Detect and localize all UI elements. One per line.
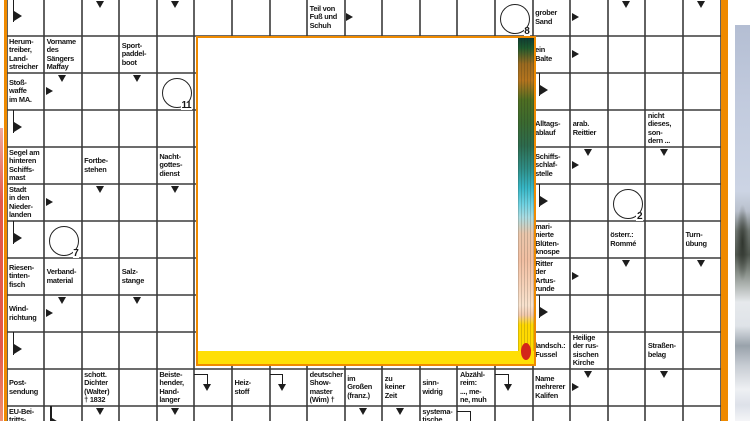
answer-cell[interactable]	[382, 0, 420, 36]
answer-cell[interactable]	[82, 332, 120, 369]
elbow-down-arrow-icon	[495, 374, 517, 396]
answer-cell[interactable]	[533, 295, 571, 332]
answer-cell[interactable]	[119, 110, 157, 147]
answer-cell[interactable]	[157, 0, 195, 36]
answer-cell[interactable]	[44, 184, 82, 221]
answer-cell[interactable]	[683, 0, 721, 36]
arrow-down-icon	[96, 408, 104, 415]
clue-text: EU-Bei- tritts-	[7, 406, 45, 421]
arrow-down-icon	[359, 408, 367, 415]
answer-cell[interactable]	[232, 406, 270, 421]
solution-circle-number: 2	[636, 212, 642, 222]
flag-arrow-icon	[539, 184, 551, 208]
arrow-down-icon	[96, 186, 104, 193]
answer-cell[interactable]	[7, 0, 45, 36]
answer-cell[interactable]	[157, 184, 195, 221]
clue-text: Fortbe- stehen	[82, 157, 120, 173]
photo-red-detail	[521, 343, 531, 360]
clue-cell: Nacht- gottes- dienst	[157, 147, 195, 184]
clue-text: ein Balte	[533, 46, 571, 62]
clue-text: arab. Reittier	[570, 120, 608, 136]
clue-text: nicht dieses, son- dern ...	[645, 112, 683, 145]
clue-text: Heilige der rus- sischen Kirche	[570, 334, 608, 367]
solution-circle: 8	[500, 4, 530, 34]
answer-cell[interactable]	[119, 147, 157, 184]
clue-cell: Straßen- belag	[645, 332, 683, 369]
answer-cell[interactable]: 11	[157, 73, 195, 110]
solution-circle-number: 7	[73, 249, 79, 259]
clue-cell: Wind- richtung	[7, 295, 45, 332]
answer-cell[interactable]	[44, 406, 82, 421]
arrow-down-icon	[171, 186, 179, 193]
clue-cell: österr.: Rommé	[608, 221, 646, 258]
answer-cell[interactable]	[157, 258, 195, 295]
clue-text: österr.: Rommé	[608, 231, 646, 247]
arrow-down-icon	[58, 75, 66, 82]
arrow-down-icon	[584, 371, 592, 378]
arrow-right-icon	[572, 272, 579, 280]
puzzle-center-photo	[196, 36, 536, 367]
clue-cell: Teil von Fuß und Schuh	[307, 0, 345, 36]
clue-cell: landsch.: Fussel	[533, 332, 571, 369]
arrow-down-icon	[96, 1, 104, 8]
clue-text: deutscher Show- master (Wim) †	[307, 371, 345, 404]
answer-cell[interactable]: 7	[44, 221, 82, 258]
answer-cell[interactable]	[570, 221, 608, 258]
answer-cell[interactable]	[683, 36, 721, 73]
answer-cell[interactable]	[683, 73, 721, 110]
clue-cell: Stoß- waffe im MA.	[7, 73, 45, 110]
answer-cell[interactable]	[608, 332, 646, 369]
solution-circle: 7	[49, 226, 79, 256]
answer-cell[interactable]	[570, 73, 608, 110]
clue-text: Teil von Fuß und Schuh	[307, 5, 345, 30]
clue-text: Schiffs- schlaf- stelle	[533, 153, 571, 178]
arrow-right-icon	[572, 50, 579, 58]
clue-cell: Schiffs- schlaf- stelle	[533, 147, 571, 184]
clue-text: Post- sendung	[7, 379, 45, 395]
answer-cell[interactable]	[608, 0, 646, 36]
answer-cell[interactable]	[570, 36, 608, 73]
answer-cell[interactable]	[157, 36, 195, 73]
arrow-down-icon	[133, 297, 141, 304]
answer-cell[interactable]	[683, 369, 721, 406]
answer-cell[interactable]	[683, 184, 721, 221]
clue-cell: Riesen- tinten- fisch	[7, 258, 45, 295]
answer-cell[interactable]	[7, 221, 45, 258]
clue-cell: Alltags- ablauf	[533, 110, 571, 147]
arrow-down-icon	[622, 260, 630, 267]
answer-cell[interactable]	[7, 332, 45, 369]
clue-text: Straßen- belag	[645, 342, 683, 358]
solution-circle: 11	[162, 78, 192, 108]
answer-cell[interactable]	[44, 110, 82, 147]
answer-cell[interactable]	[194, 0, 232, 36]
answer-cell[interactable]	[608, 295, 646, 332]
flag-arrow-icon	[13, 221, 25, 245]
clue-cell: systema- tische	[420, 406, 458, 421]
clue-text: Verband- material	[44, 268, 82, 284]
clue-text: landsch.: Fussel	[533, 342, 571, 358]
clue-text: Stoß- waffe im MA.	[7, 79, 45, 104]
answer-cell[interactable]	[683, 332, 721, 369]
clue-cell: Post- sendung	[7, 369, 45, 406]
flag-arrow-icon	[13, 0, 25, 23]
arrow-down-icon	[58, 297, 66, 304]
arrow-right-icon	[46, 87, 53, 95]
answer-cell[interactable]	[157, 221, 195, 258]
arrow-right-icon	[346, 13, 353, 21]
answer-cell[interactable]	[44, 0, 82, 36]
answer-cell[interactable]	[570, 406, 608, 421]
clue-cell: deutscher Show- master (Wim) †	[307, 369, 345, 406]
answer-cell[interactable]	[570, 258, 608, 295]
answer-cell[interactable]	[608, 36, 646, 73]
answer-cell[interactable]	[119, 295, 157, 332]
answer-cell[interactable]	[382, 406, 420, 421]
arrow-right-icon	[46, 309, 53, 317]
answer-cell[interactable]	[82, 0, 120, 36]
clue-cell: schott. Dichter (Walter) † 1832	[82, 369, 120, 406]
answer-cell[interactable]	[608, 73, 646, 110]
answer-cell[interactable]	[570, 0, 608, 36]
clue-text: Ritter der Artus- runde	[533, 260, 571, 293]
photo-strip	[518, 38, 535, 365]
answer-cell[interactable]	[82, 73, 120, 110]
clue-cell: Stadt in den Nieder- landen	[7, 184, 45, 221]
arrow-right-icon	[572, 161, 579, 169]
answer-cell[interactable]	[645, 221, 683, 258]
answer-cell[interactable]	[44, 73, 82, 110]
answer-cell[interactable]	[683, 295, 721, 332]
elbow-down-arrow-icon	[457, 411, 479, 421]
arrow-down-icon	[133, 75, 141, 82]
clue-cell: zu keiner Zeit	[382, 369, 420, 406]
clue-text: sinn- widrig	[420, 379, 458, 395]
answer-cell[interactable]	[683, 406, 721, 421]
answer-cell[interactable]	[645, 184, 683, 221]
clue-text: Wind- richtung	[7, 305, 45, 321]
answer-cell[interactable]	[608, 406, 646, 421]
arrow-down-icon	[396, 408, 404, 415]
clue-text: Heiz- stoff	[232, 379, 270, 395]
answer-cell[interactable]	[533, 73, 571, 110]
answer-cell[interactable]	[157, 110, 195, 147]
clue-cell: grober Sand	[533, 0, 571, 36]
clue-cell: Herum- treiber, Land- streicher	[7, 36, 45, 73]
clue-text: Riesen- tinten- fisch	[7, 264, 45, 289]
arrow-down-icon	[660, 149, 668, 156]
clue-cell: Fortbe- stehen	[82, 147, 120, 184]
answer-cell[interactable]	[533, 184, 571, 221]
answer-cell[interactable]	[457, 0, 495, 36]
arrow-down-icon	[622, 1, 630, 8]
photo-frame-yellow	[198, 351, 534, 364]
answer-cell[interactable]	[570, 369, 608, 406]
clue-text: Beiste- hender, Hand- langer	[157, 371, 195, 404]
arrow-down-icon	[171, 1, 179, 8]
answer-cell[interactable]	[119, 221, 157, 258]
clue-cell: Turn- übung	[683, 221, 721, 258]
answer-cell[interactable]	[270, 369, 308, 406]
clue-text: Vorname des Sängers Maffay	[44, 38, 82, 71]
arrow-right-icon	[572, 13, 579, 21]
clue-cell: Abzähl- reim: ..., me- ne, muh	[457, 369, 495, 406]
answer-cell[interactable]	[119, 332, 157, 369]
answer-cell[interactable]	[645, 73, 683, 110]
answer-cell[interactable]	[533, 406, 571, 421]
answer-cell[interactable]	[7, 110, 45, 147]
clue-text: schott. Dichter (Walter) † 1832	[82, 371, 120, 404]
answer-cell[interactable]	[608, 258, 646, 295]
answer-cell[interactable]	[232, 0, 270, 36]
puzzle-border-left	[4, 0, 7, 421]
answer-cell[interactable]	[44, 369, 82, 406]
answer-cell[interactable]	[82, 36, 120, 73]
answer-cell[interactable]	[44, 295, 82, 332]
flag-arrow-icon	[539, 295, 551, 319]
clue-cell: Segel am hinteren Schiffs- mast	[7, 147, 45, 184]
answer-cell[interactable]	[82, 406, 120, 421]
clue-cell: Vorname des Sängers Maffay	[44, 36, 82, 73]
clue-cell: arab. Reittier	[570, 110, 608, 147]
clue-cell: Sport- paddel- boot	[119, 36, 157, 73]
clue-cell: Salz- stange	[119, 258, 157, 295]
answer-cell[interactable]	[270, 0, 308, 36]
flag-arrow-icon	[50, 406, 62, 421]
clue-text: mari- nierte Blüten- knospe	[533, 223, 571, 256]
elbow-down-arrow-icon	[194, 374, 216, 396]
answer-cell[interactable]	[645, 36, 683, 73]
solution-circle-number: 11	[181, 101, 192, 111]
answer-cell[interactable]	[119, 0, 157, 36]
answer-cell[interactable]	[420, 0, 458, 36]
clue-text: systema- tische	[420, 406, 458, 421]
answer-cell[interactable]	[645, 369, 683, 406]
flag-arrow-icon	[539, 73, 551, 97]
clue-text: Salz- stange	[119, 268, 157, 284]
answer-cell[interactable]	[608, 147, 646, 184]
clue-text: Alltags- ablauf	[533, 120, 571, 136]
answer-cell[interactable]	[119, 369, 157, 406]
answer-cell[interactable]	[608, 110, 646, 147]
clue-text: Sport- paddel- boot	[119, 42, 157, 67]
answer-cell[interactable]	[82, 184, 120, 221]
clue-text: Herum- treiber, Land- streicher	[7, 38, 45, 71]
answer-cell[interactable]	[645, 0, 683, 36]
answer-cell[interactable]	[82, 258, 120, 295]
answer-cell[interactable]	[645, 406, 683, 421]
clue-cell: mari- nierte Blüten- knospe	[533, 221, 571, 258]
arrow-right-icon	[572, 383, 579, 391]
arrow-down-icon	[584, 149, 592, 156]
answer-cell[interactable]	[495, 406, 533, 421]
background-photo	[735, 25, 750, 421]
clue-text: Stadt in den Nieder- landen	[7, 186, 45, 219]
answer-cell[interactable]	[119, 73, 157, 110]
answer-cell[interactable]	[345, 406, 383, 421]
answer-cell[interactable]	[608, 369, 646, 406]
clue-cell: Heiz- stoff	[232, 369, 270, 406]
clue-cell: ein Balte	[533, 36, 571, 73]
answer-cell[interactable]	[457, 406, 495, 421]
arrow-down-icon	[660, 371, 668, 378]
clue-text: Turn- übung	[683, 231, 721, 247]
answer-cell[interactable]	[44, 332, 82, 369]
answer-cell[interactable]	[157, 406, 195, 421]
clue-cell: EU-Bei- tritts-	[7, 406, 45, 421]
solution-circle: 2	[613, 189, 643, 219]
answer-cell[interactable]	[683, 258, 721, 295]
clue-cell: Ritter der Artus- runde	[533, 258, 571, 295]
answer-cell[interactable]	[570, 184, 608, 221]
clue-text: im Großen (franz.)	[345, 375, 383, 400]
flag-arrow-icon	[13, 110, 25, 134]
answer-cell[interactable]	[570, 295, 608, 332]
answer-cell[interactable]	[345, 0, 383, 36]
answer-cell[interactable]	[82, 110, 120, 147]
arrow-right-icon	[46, 198, 53, 206]
arrow-down-icon	[171, 408, 179, 415]
answer-cell[interactable]	[194, 369, 232, 406]
answer-cell[interactable]	[645, 147, 683, 184]
clue-cell: nicht dieses, son- dern ...	[645, 110, 683, 147]
answer-cell[interactable]	[570, 147, 608, 184]
clue-text: Nacht- gottes- dienst	[157, 153, 195, 178]
answer-cell[interactable]	[82, 295, 120, 332]
crossword-page: Teil von Fuß und Schuh8grober SandHerum-…	[0, 0, 750, 421]
clue-cell: Name mehrerer Kalifen	[533, 369, 571, 406]
answer-cell[interactable]	[495, 369, 533, 406]
clue-text: grober Sand	[533, 9, 571, 25]
answer-cell[interactable]	[157, 295, 195, 332]
clue-text: Segel am hinteren Schiffs- mast	[7, 149, 45, 182]
clue-cell: sinn- widrig	[420, 369, 458, 406]
answer-cell[interactable]	[194, 406, 232, 421]
clue-cell: Beiste- hender, Hand- langer	[157, 369, 195, 406]
clue-text: Abzähl- reim: ..., me- ne, muh	[457, 371, 495, 404]
clue-cell: Verband- material	[44, 258, 82, 295]
answer-cell[interactable]	[44, 147, 82, 184]
answer-cell[interactable]	[270, 406, 308, 421]
answer-cell[interactable]	[307, 406, 345, 421]
elbow-down-arrow-icon	[270, 374, 292, 396]
answer-cell[interactable]	[683, 110, 721, 147]
answer-cell[interactable]	[683, 147, 721, 184]
arrow-down-icon	[697, 260, 705, 267]
puzzle-border-right	[721, 0, 728, 421]
answer-cell[interactable]	[157, 332, 195, 369]
clue-cell: Heilige der rus- sischen Kirche	[570, 332, 608, 369]
answer-cell[interactable]	[645, 295, 683, 332]
answer-cell[interactable]	[119, 184, 157, 221]
answer-cell[interactable]	[119, 406, 157, 421]
answer-cell[interactable]	[82, 221, 120, 258]
clue-cell: im Großen (franz.)	[345, 369, 383, 406]
flag-arrow-icon	[13, 332, 25, 356]
arrow-down-icon	[697, 1, 705, 8]
clue-text: Name mehrerer Kalifen	[533, 375, 571, 400]
answer-cell[interactable]	[645, 258, 683, 295]
clue-text: zu keiner Zeit	[382, 375, 420, 400]
answer-cell[interactable]: 8	[495, 0, 533, 36]
answer-cell[interactable]: 2	[608, 184, 646, 221]
